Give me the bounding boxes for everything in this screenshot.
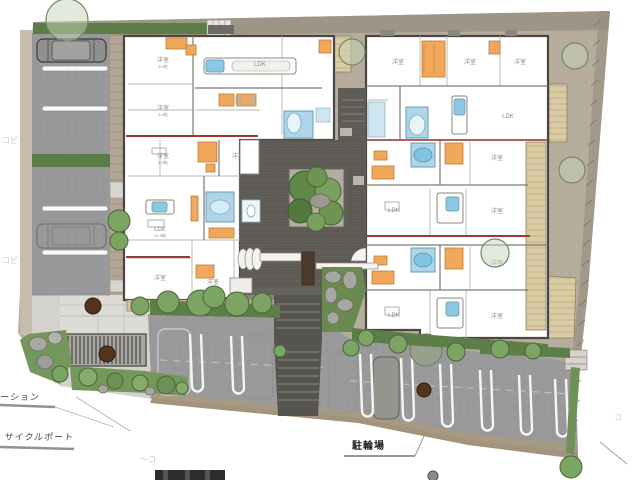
svg-text:LDK: LDK xyxy=(502,114,514,120)
svg-text:〜コ: 〜コ xyxy=(140,455,156,464)
svg-text:洋室: 洋室 xyxy=(207,278,219,286)
svg-text:LDK: LDK xyxy=(388,208,400,214)
svg-text:洋室: 洋室 xyxy=(514,58,526,66)
svg-text:コピ: コピ xyxy=(2,136,18,145)
svg-text:コピ: コピ xyxy=(2,256,18,265)
svg-text:ーション: ーション xyxy=(0,392,41,402)
svg-text:洋室: 洋室 xyxy=(464,58,476,66)
svg-text:12.4帖: 12.4帖 xyxy=(154,232,166,238)
svg-text:洋室: 洋室 xyxy=(491,312,503,320)
svg-text:6.0帖: 6.0帖 xyxy=(158,63,168,69)
svg-text:洋室: 洋室 xyxy=(491,154,503,162)
svg-text:6.0帖: 6.0帖 xyxy=(158,159,168,165)
svg-text:駐輪場: 駐輪場 xyxy=(352,439,385,452)
svg-text:コ: コ xyxy=(614,413,622,422)
svg-text:6.2帖: 6.2帖 xyxy=(158,111,168,117)
svg-text:サイクルポート: サイクルポート xyxy=(4,432,75,442)
svg-text:洋室: 洋室 xyxy=(157,56,169,64)
svg-text:洋室: 洋室 xyxy=(392,58,404,66)
svg-text:LDK: LDK xyxy=(388,313,400,319)
svg-text:洋室: 洋室 xyxy=(157,104,169,112)
svg-text:LDK: LDK xyxy=(254,62,266,68)
svg-text:洋室: 洋室 xyxy=(154,274,166,282)
svg-text:洋室: 洋室 xyxy=(157,152,169,160)
svg-text:洋室: 洋室 xyxy=(491,207,503,215)
